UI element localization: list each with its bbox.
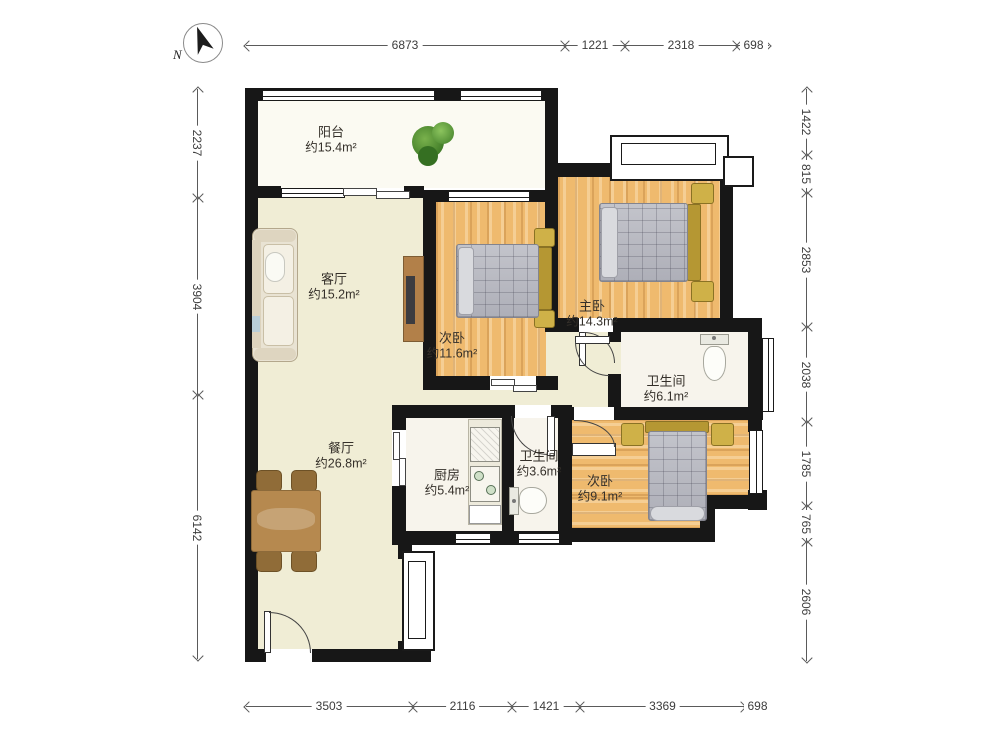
dim-label: 698 — [739, 38, 767, 52]
dim-label: 1785 — [799, 447, 813, 482]
dining-chair — [291, 550, 317, 572]
dim-segment-top: 2318 — [625, 38, 737, 52]
dim-label: 815 — [799, 160, 813, 188]
dim-segment-right: 815 — [799, 155, 813, 193]
bay-window-glass — [621, 143, 716, 165]
dining-chair — [291, 470, 317, 492]
dim-segment-right: 765 — [799, 506, 813, 542]
dim-segment-bottom: 2116 — [413, 699, 512, 713]
dim-label: 1421 — [529, 699, 564, 713]
dim-segment-left: 6142 — [190, 395, 204, 660]
dim-segment-bottom: 3369 — [580, 699, 745, 713]
dim-segment-left: 3904 — [190, 198, 204, 395]
room-label-bathroom2: 卫生间 约3.6m² — [517, 448, 561, 479]
corner-window — [723, 156, 754, 187]
dim-label: 765 — [799, 510, 813, 538]
room-label-bathroom1: 卫生间 约6.1m² — [644, 373, 688, 404]
dim-segment-left: 2237 — [190, 88, 204, 198]
floorplan-canvas: N — [0, 0, 1000, 750]
stove-burner — [486, 485, 496, 495]
wall — [545, 88, 558, 198]
dim-segment-right: 2606 — [799, 542, 813, 662]
room-label-bedroom3: 次卧 约9.1m² — [578, 473, 622, 504]
window — [518, 533, 560, 544]
dim-label: 3369 — [645, 699, 680, 713]
bed-pillow — [601, 207, 618, 278]
sofa-pillow — [265, 252, 285, 282]
toilet-bowl — [519, 487, 547, 514]
wall — [720, 163, 733, 332]
window — [281, 188, 345, 198]
dim-label: 2237 — [190, 126, 204, 161]
dim-label: 2038 — [799, 357, 813, 392]
plant-icon — [432, 122, 454, 144]
kitchen-slider-panel — [399, 458, 406, 486]
window — [455, 533, 491, 544]
dining-chair — [256, 470, 282, 492]
wall — [502, 418, 514, 535]
balcony-slider-panel — [376, 191, 410, 199]
nightstand — [621, 423, 644, 446]
window — [448, 191, 530, 202]
bed-headboard — [537, 247, 552, 310]
room-label-kitchen: 厨房 约5.4m² — [425, 467, 469, 498]
bed-pillow — [458, 247, 474, 315]
room-label-balcony: 阳台 约15.4m² — [305, 124, 356, 155]
dim-label: 6142 — [190, 510, 204, 545]
room-label-living: 客厅 约15.2m² — [308, 271, 359, 302]
bedroom2-slider-panel — [513, 385, 537, 392]
dim-segment-bottom: 3503 — [245, 699, 413, 713]
wall — [245, 88, 258, 662]
dim-segment-bottom: 698 — [745, 699, 770, 713]
kitchen-slider-panel — [393, 432, 400, 460]
window — [460, 90, 542, 101]
plant-icon — [418, 146, 438, 166]
sink-icon — [470, 427, 500, 462]
dim-segment-right: 1785 — [799, 422, 813, 506]
window — [262, 90, 435, 101]
toilet-bowl — [703, 346, 726, 381]
wall — [392, 405, 517, 418]
bay-window-glass — [408, 561, 426, 639]
counter-cabinet — [469, 505, 501, 524]
bed-blanket-roll — [650, 506, 705, 521]
floor-balcony — [258, 100, 545, 188]
dim-label: 3904 — [190, 279, 204, 314]
dim-label: 2116 — [446, 699, 480, 713]
dim-label: 1221 — [578, 38, 613, 52]
bed-headboard — [687, 204, 701, 281]
dim-segment-top: 698 — [737, 38, 770, 52]
compass-needle-icon — [181, 21, 225, 65]
sofa-cushion — [263, 296, 294, 346]
dim-segment-right: 2038 — [799, 327, 813, 422]
window — [762, 338, 774, 412]
bedroom3-door-opening — [574, 407, 614, 420]
room-label-dining: 餐厅 约26.8m² — [315, 440, 366, 471]
stove-burner — [474, 471, 484, 481]
compass-north-label: N — [173, 47, 182, 63]
toilet-button — [512, 499, 516, 503]
dim-label: 3503 — [312, 699, 347, 713]
room-label-master: 主卧 约14.3m² — [566, 298, 617, 329]
compass: N — [181, 21, 225, 65]
nightstand — [691, 281, 714, 302]
toilet-button — [712, 336, 716, 340]
stove-icon — [470, 466, 500, 502]
window — [749, 430, 763, 494]
wall — [245, 186, 281, 198]
tv-screen — [406, 276, 415, 324]
dim-label: 1422 — [799, 104, 813, 139]
dining-chair — [256, 550, 282, 572]
dim-label: 2853 — [799, 243, 813, 278]
dining-table-grain — [257, 508, 315, 530]
balcony-slider-panel — [343, 188, 377, 196]
wall — [545, 163, 615, 177]
sofa-armrest — [254, 348, 296, 360]
room-label-bedroom2: 次卧 约11.6m² — [427, 330, 477, 361]
sofa-side-table — [252, 316, 260, 332]
dim-segment-top: 1221 — [565, 38, 625, 52]
dim-segment-right: 2853 — [799, 193, 813, 327]
dim-label: 2606 — [799, 585, 813, 620]
dim-label: 2318 — [664, 38, 699, 52]
nightstand — [691, 183, 714, 204]
dim-segment-bottom: 1421 — [512, 699, 580, 713]
dim-segment-right: 1422 — [799, 88, 813, 155]
dim-label: 698 — [743, 699, 771, 713]
dim-label: 6873 — [388, 38, 423, 52]
nightstand — [711, 423, 734, 446]
wall — [558, 528, 715, 542]
bedroom2-slider-panel — [491, 379, 515, 386]
dim-segment-top: 6873 — [245, 38, 565, 52]
